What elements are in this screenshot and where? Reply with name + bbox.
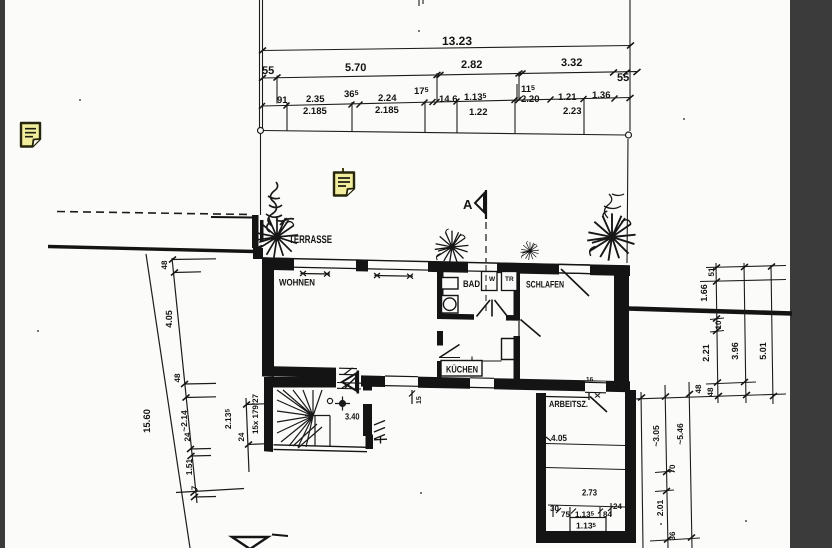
svg-text:~2.14: ~2.14: [179, 410, 189, 432]
svg-text:36: 36: [668, 531, 677, 540]
svg-text:2.185: 2.185: [375, 105, 399, 116]
svg-text:2.24: 2.24: [378, 93, 397, 104]
svg-text:1.51: 1.51: [184, 458, 194, 475]
svg-text:5.01: 5.01: [758, 342, 768, 360]
svg-text:13.23: 13.23: [442, 34, 472, 48]
svg-text:48: 48: [694, 384, 703, 393]
svg-text:WOHNEN: WOHNEN: [279, 278, 315, 289]
svg-text:2.21: 2.21: [701, 344, 711, 362]
svg-text:55: 55: [617, 72, 629, 84]
svg-text:24: 24: [183, 432, 192, 441]
svg-text:~5.46: ~5.46: [675, 423, 685, 445]
svg-text:3.96: 3.96: [730, 342, 740, 360]
svg-text:15x 179/27: 15x 179/27: [251, 393, 260, 434]
svg-text:55: 55: [262, 65, 274, 77]
svg-text:91: 91: [277, 95, 288, 106]
svg-text:1.36: 1.36: [592, 90, 611, 101]
svg-text:ARBEITSZ.: ARBEITSZ.: [549, 399, 588, 409]
svg-text:48: 48: [706, 387, 715, 396]
svg-text:2.20: 2.20: [521, 94, 540, 105]
svg-text:2.35: 2.35: [306, 94, 325, 105]
svg-text:7: 7: [190, 485, 199, 490]
svg-text:BAD: BAD: [463, 279, 480, 290]
svg-text:48: 48: [160, 260, 169, 269]
svg-text:15.60: 15.60: [142, 409, 153, 433]
svg-text:KÜCHEN: KÜCHEN: [446, 364, 478, 376]
svg-text:14.6: 14.6: [439, 94, 458, 105]
svg-text:24: 24: [237, 432, 246, 441]
svg-text:2.73: 2.73: [582, 488, 597, 498]
svg-text:3.40: 3.40: [345, 412, 360, 422]
svg-text:2.185: 2.185: [303, 106, 327, 117]
svg-text:10: 10: [714, 320, 723, 329]
svg-text:A: A: [463, 197, 473, 212]
svg-text:24: 24: [613, 502, 622, 511]
svg-text:2.82: 2.82: [461, 59, 482, 71]
svg-text:W: W: [489, 276, 496, 283]
svg-text:2.23: 2.23: [563, 106, 582, 117]
svg-text:1.21: 1.21: [558, 92, 577, 103]
svg-text:SCHLAFEN: SCHLAFEN: [526, 280, 564, 291]
svg-text:~3.05: ~3.05: [651, 425, 661, 447]
svg-text:16: 16: [586, 377, 594, 384]
svg-text:1.22: 1.22: [469, 107, 488, 118]
svg-text:48: 48: [173, 373, 182, 382]
svg-text:3.32: 3.32: [561, 57, 582, 69]
svg-text:2.01: 2.01: [655, 499, 665, 516]
svg-text:1.66: 1.66: [699, 284, 709, 302]
svg-text:70: 70: [668, 464, 677, 473]
svg-text:15: 15: [416, 396, 423, 404]
svg-text:4.05: 4.05: [164, 310, 174, 328]
svg-text:51: 51: [707, 267, 716, 276]
svg-text:4.05: 4.05: [551, 433, 567, 443]
svg-text:75: 75: [561, 510, 570, 519]
svg-text:TR: TR: [505, 276, 514, 283]
svg-text:5.70: 5.70: [345, 62, 366, 74]
